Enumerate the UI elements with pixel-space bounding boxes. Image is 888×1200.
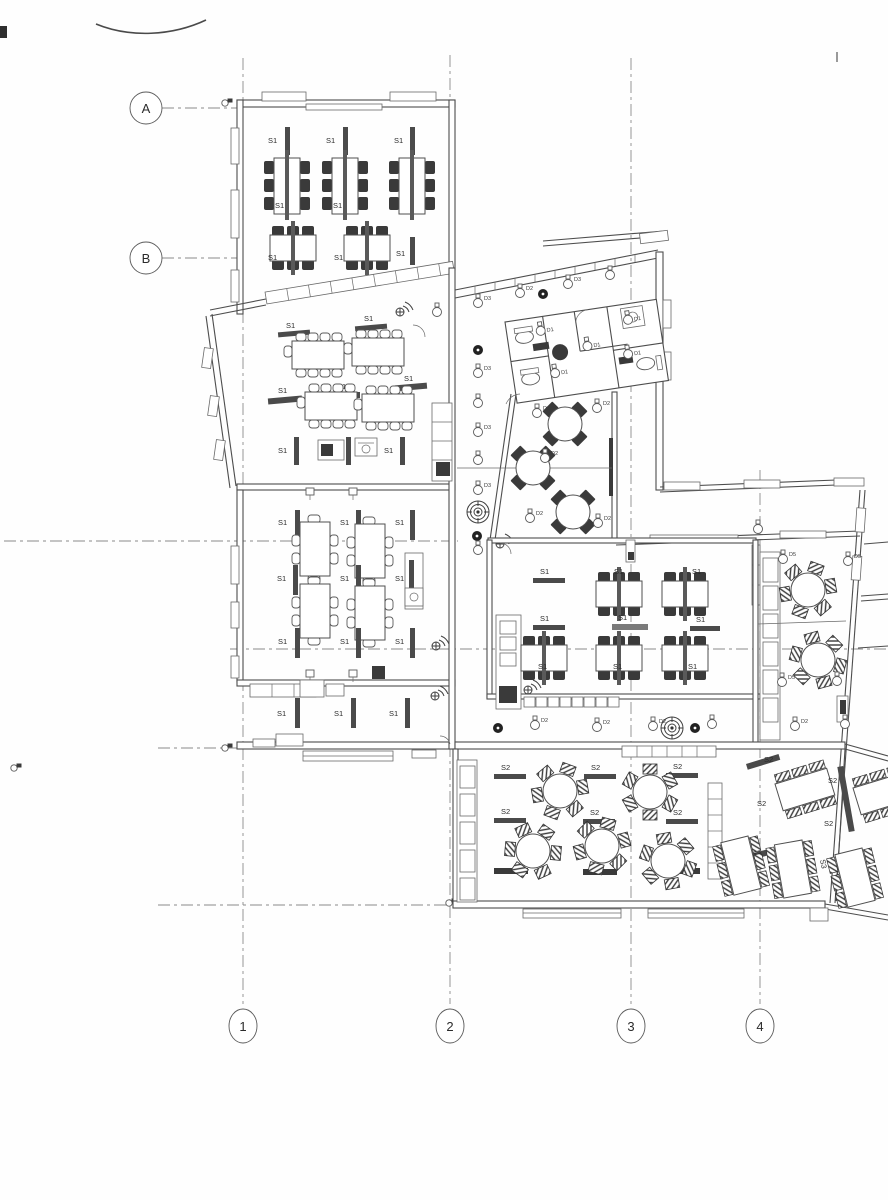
furniture-code: S1 xyxy=(277,709,286,718)
furniture-code: S2 xyxy=(673,762,682,771)
table-six-chairs xyxy=(389,150,435,220)
detector-symbol xyxy=(791,717,800,731)
door-symbol xyxy=(306,488,314,500)
table-six-chairs xyxy=(596,631,642,685)
grid-bubble-col-2: 2 xyxy=(436,1009,464,1043)
gridline-anchor xyxy=(222,744,233,752)
bottom-room-furniture: S2 S2 S2 S2 S2 S2 xyxy=(494,752,707,901)
central-classroom: S1 S1 S1 S1 S1 S1 S1 S1 S1 xyxy=(487,538,760,709)
angled-table xyxy=(712,834,770,898)
furniture-code: S1 xyxy=(277,574,286,583)
table-open-chairs xyxy=(297,384,357,428)
ceiling-device-target-symbol xyxy=(467,501,489,523)
scan-artifacts xyxy=(0,20,838,62)
gridline-anchor xyxy=(11,764,22,772)
floor-plan-drawing: A B 1 2 3 4 xyxy=(0,0,888,1200)
furniture-code: S1 xyxy=(268,253,277,262)
furniture-code: S2 xyxy=(824,819,833,828)
furniture-code: S1 xyxy=(334,253,343,262)
table-six-chairs xyxy=(322,150,368,220)
detector-symbol xyxy=(593,399,602,413)
round-table-four-chairs xyxy=(550,489,595,534)
furniture-code: S1 xyxy=(540,614,549,623)
round-table-six-chairs xyxy=(498,816,568,886)
furniture-code: S1 xyxy=(333,201,342,210)
device-code: D5 xyxy=(789,552,796,558)
round-table-six-chairs xyxy=(779,561,837,618)
furniture-code: S2 xyxy=(828,776,837,785)
device-code: D2 xyxy=(603,401,610,407)
furniture-code: S1 xyxy=(538,662,547,671)
device-code: D2 xyxy=(536,511,543,517)
furniture-code: S1 xyxy=(613,662,622,671)
furniture-code: S1 xyxy=(395,637,404,646)
furniture-code: S1 xyxy=(334,709,343,718)
furniture-code: S1 xyxy=(692,567,701,576)
floor-plan-page: A B 1 2 3 4 xyxy=(0,0,888,1200)
wc-block: D1 D1 D1 D1 D1 xyxy=(505,299,668,403)
device-code: D1 xyxy=(634,316,642,323)
lounge-area: D2 D2 D2 D2 D2 xyxy=(457,392,617,540)
room-2-dining: S1 S1 S1 S1 S1 S1 S1 S1 xyxy=(268,302,452,481)
round-table-six-chairs xyxy=(562,806,642,886)
furniture-code: S1 xyxy=(395,518,404,527)
device-code: D3 xyxy=(484,366,491,372)
room-top-classroom: S1 S1 S1 S1 S1 S1 S1 S1 xyxy=(264,127,435,275)
grid-col-label: 3 xyxy=(627,1019,634,1034)
device-code: D5 xyxy=(788,675,795,681)
table-open-chairs xyxy=(347,517,393,585)
detector-symbol xyxy=(754,520,763,534)
furniture-code: S1 xyxy=(340,637,349,646)
furniture-code: S1 xyxy=(394,136,403,145)
detector-symbol xyxy=(531,716,540,730)
device-code: D1 xyxy=(593,342,601,349)
detector-symbol-filled xyxy=(472,531,482,541)
grid-col-label: 4 xyxy=(756,1019,763,1034)
device-code: D1 xyxy=(546,327,554,334)
furniture-code: S1 xyxy=(696,615,705,624)
device-code: D2 xyxy=(551,451,558,457)
detector-symbol xyxy=(844,552,853,566)
grid-row-label: A xyxy=(142,101,151,116)
device-code: D2 xyxy=(526,286,533,292)
angled-table xyxy=(766,838,821,899)
wifi-signal-icon xyxy=(431,686,448,700)
device-code: D3 xyxy=(484,425,491,431)
ceiling-device-target-symbol xyxy=(661,717,683,739)
table-open-chairs xyxy=(347,579,393,647)
grid-bubble-col-3: 3 xyxy=(617,1009,645,1043)
furniture-code: S1 xyxy=(268,136,277,145)
angled-table xyxy=(772,760,837,820)
furniture-code: S1 xyxy=(540,567,549,576)
furniture-code: S1 xyxy=(278,637,287,646)
furniture-code: S1 xyxy=(326,136,335,145)
device-code: D2 xyxy=(604,516,611,522)
furniture-code: S1 xyxy=(396,249,405,258)
round-table-six-chairs xyxy=(780,622,856,698)
grid-bubble-row-b: B xyxy=(130,242,162,274)
furniture-code: S1 xyxy=(395,574,404,583)
detector-symbol-filled xyxy=(538,289,548,299)
table-open-chairs xyxy=(354,386,414,430)
detector-symbol xyxy=(533,404,542,418)
device-code: D2 xyxy=(543,406,550,412)
door-symbol xyxy=(349,488,357,500)
room-3-classroom: S1 S1 S1 S1 S1 S1 S1 S1 S1 xyxy=(277,488,449,682)
detector-symbol-filled xyxy=(493,723,503,733)
wifi-signal-icon xyxy=(396,302,413,316)
furniture-code: S1 xyxy=(389,709,398,718)
detector-symbol xyxy=(474,364,483,378)
round-table-four-chairs xyxy=(510,445,555,490)
table-six-chairs xyxy=(662,631,708,685)
detector-symbol xyxy=(593,718,602,732)
device-code: D2 xyxy=(801,719,808,725)
detector-symbol xyxy=(474,294,483,308)
grid-row-label: B xyxy=(142,251,151,266)
furniture-code: S2 xyxy=(673,808,682,817)
furniture-code: S1 xyxy=(364,314,373,323)
detector-symbol xyxy=(833,672,842,686)
detector-symbol xyxy=(433,303,442,317)
device-code: D3 xyxy=(574,277,581,283)
round-table-six-chairs xyxy=(531,762,589,819)
grid-bubble-col-4: 4 xyxy=(746,1009,774,1043)
grid-col-label: 1 xyxy=(239,1019,246,1034)
round-table-six-chairs xyxy=(629,822,708,901)
device-code: D5 xyxy=(854,554,861,560)
device-code: D3 xyxy=(484,296,491,302)
table-six-chairs xyxy=(264,150,310,220)
furniture-code: S2 xyxy=(501,807,510,816)
furniture-code: S1 xyxy=(340,574,349,583)
table-open-chairs xyxy=(344,330,404,374)
detector-symbol xyxy=(474,423,483,437)
grid-col-label: 2 xyxy=(446,1019,453,1034)
grid-bubble-row-a: A xyxy=(130,92,162,124)
wifi-signal-icon xyxy=(432,636,449,650)
device-code: D2 xyxy=(603,720,610,726)
detector-symbol xyxy=(594,514,603,528)
table-six-chairs xyxy=(270,221,316,275)
detector-symbol xyxy=(474,451,483,465)
furniture-code: S1 xyxy=(340,518,349,527)
table-open-chairs xyxy=(284,333,344,377)
furniture-code: S1 xyxy=(278,518,287,527)
furniture-code: S1 xyxy=(278,386,287,395)
furniture-code: S2 xyxy=(501,763,510,772)
detector-symbol-filled xyxy=(690,723,700,733)
furniture-code: S2 xyxy=(590,808,599,817)
device-code: D3 xyxy=(484,483,491,489)
furniture-code: S1 xyxy=(384,446,393,455)
device-code: D2 xyxy=(541,718,548,724)
furniture-code: S1 xyxy=(278,446,287,455)
table-six-chairs xyxy=(344,221,390,275)
detector-symbol xyxy=(474,541,483,555)
furniture-code: S1 xyxy=(618,613,627,622)
gridline-anchor xyxy=(222,99,233,107)
furniture-code: S2 xyxy=(591,763,600,772)
furniture-code: S1 xyxy=(404,374,413,383)
device-code: D1 xyxy=(634,350,642,357)
furniture-code: S2 xyxy=(757,799,766,808)
device-code: D1 xyxy=(561,369,569,376)
furniture-code: S1 xyxy=(614,567,623,576)
furniture-code: S2 xyxy=(764,755,773,764)
detector-symbol xyxy=(564,275,573,289)
detector-symbol xyxy=(708,715,717,729)
wifi-signal-icon xyxy=(524,680,541,694)
detector-symbol xyxy=(649,717,658,731)
detector-symbol xyxy=(474,394,483,408)
detector-symbol xyxy=(474,481,483,495)
table-six-chairs xyxy=(521,631,567,685)
angled-table xyxy=(850,764,888,824)
bottom-right-furniture: S2 S2 S2 S2 S3 S3 xyxy=(712,754,888,909)
grid-bubble-col-1: 1 xyxy=(229,1009,257,1043)
furniture-code: S1 xyxy=(286,321,295,330)
detector-symbol xyxy=(526,509,535,523)
furniture-code: S1 xyxy=(275,201,284,210)
furniture-code: S1 xyxy=(688,662,697,671)
detector-symbol-filled xyxy=(473,345,483,355)
